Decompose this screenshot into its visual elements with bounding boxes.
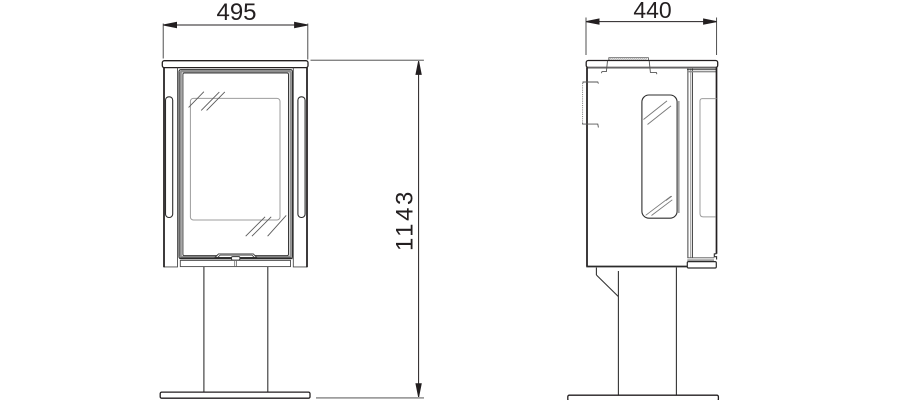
svg-text:495: 495 bbox=[216, 0, 256, 26]
svg-text:440: 440 bbox=[633, 0, 671, 23]
svg-text:1143: 1143 bbox=[391, 189, 418, 251]
